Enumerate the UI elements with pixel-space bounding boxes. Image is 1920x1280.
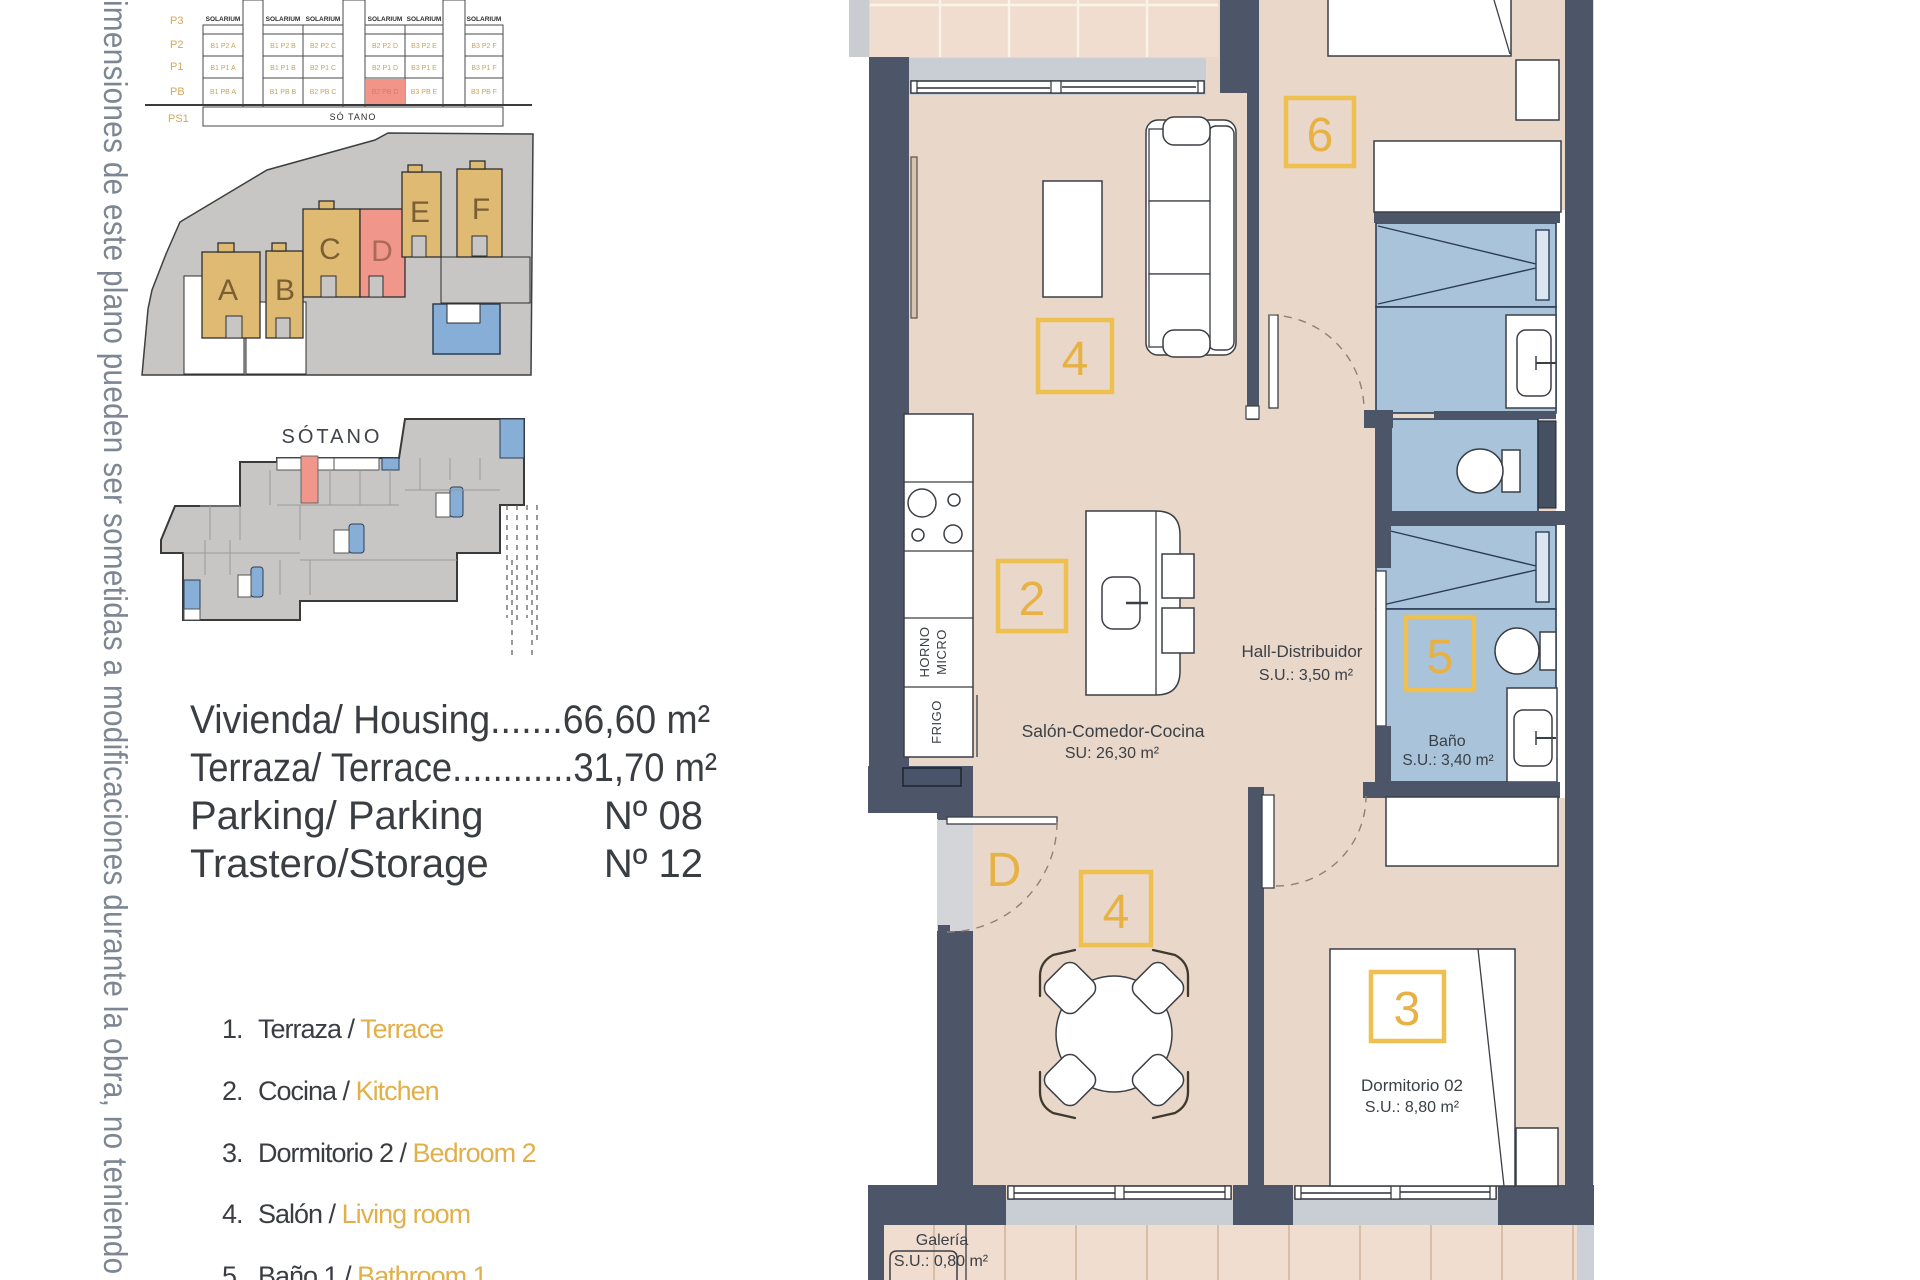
svg-text:SÓTANO: SÓTANO — [282, 425, 383, 448]
svg-text:B3 P2 E: B3 P2 E — [411, 43, 437, 50]
svg-text:Nº 12: Nº 12 — [604, 842, 703, 886]
svg-text:B1 PB A: B1 PB A — [210, 89, 236, 96]
svg-text:S.U.: 3,50 m²: S.U.: 3,50 m² — [1259, 667, 1354, 684]
svg-text:6: 6 — [1307, 109, 1334, 162]
svg-text:D: D — [371, 235, 393, 268]
svg-text:Terraza / Terrace: Terraza / Terrace — [258, 1014, 443, 1044]
svg-text:1.: 1. — [222, 1014, 243, 1044]
svg-text:Trastero/Storage: Trastero/Storage — [190, 842, 489, 886]
svg-text:Parking/ Parking: Parking/ Parking — [190, 794, 483, 838]
svg-text:C: C — [319, 233, 341, 266]
svg-text:Cocina / Kitchen: Cocina / Kitchen — [258, 1076, 439, 1106]
svg-text:SOLARIUM: SOLARIUM — [306, 16, 341, 23]
svg-text:B1 PB B: B1 PB B — [270, 89, 297, 96]
svg-text:B1 P1 B: B1 P1 B — [270, 65, 296, 72]
svg-text:B2 P2 D: B2 P2 D — [372, 43, 398, 50]
svg-text:P3: P3 — [170, 15, 183, 27]
svg-text:P1: P1 — [170, 61, 183, 73]
svg-text:Dormitorio 02: Dormitorio 02 — [1361, 1076, 1463, 1095]
svg-text:S.U.: 8,80 m²: S.U.: 8,80 m² — [1365, 1099, 1460, 1116]
svg-text:B3 PB F: B3 PB F — [471, 89, 497, 96]
svg-text:MICRO: MICRO — [934, 629, 949, 675]
svg-text:imensiones de este plano puede: imensiones de este plano pueden ser some… — [97, 0, 134, 1280]
svg-text:2.: 2. — [222, 1076, 243, 1106]
svg-text:B2 P1 C: B2 P1 C — [310, 65, 336, 72]
svg-text:SOLARIUM: SOLARIUM — [266, 16, 301, 23]
svg-text:4.: 4. — [222, 1199, 243, 1229]
svg-text:B2 PB C: B2 PB C — [310, 89, 337, 96]
svg-text:FRIGO: FRIGO — [929, 700, 944, 744]
svg-text:SOLARIUM: SOLARIUM — [407, 16, 442, 23]
svg-text:B3 P1 E: B3 P1 E — [411, 65, 437, 72]
svg-text:Nº 08: Nº 08 — [604, 794, 703, 838]
svg-text:B1 P1 A: B1 P1 A — [210, 65, 236, 72]
svg-text:2: 2 — [1019, 573, 1046, 626]
svg-text:Baño 1 / Bathroom 1: Baño 1 / Bathroom 1 — [258, 1261, 487, 1280]
svg-text:3.: 3. — [222, 1138, 243, 1168]
svg-text:B: B — [275, 274, 295, 307]
svg-text:4: 4 — [1062, 333, 1089, 386]
svg-text:SOLARIUM: SOLARIUM — [368, 16, 403, 23]
svg-text:P2: P2 — [170, 39, 183, 51]
svg-text:Hall-Distribuidor: Hall-Distribuidor — [1242, 642, 1363, 661]
svg-text:Baño: Baño — [1428, 733, 1465, 750]
svg-text:SOLARIUM: SOLARIUM — [206, 16, 241, 23]
svg-text:B1 P2 B: B1 P2 B — [270, 43, 296, 50]
svg-text:SU: 26,30 m²: SU: 26,30 m² — [1065, 745, 1160, 762]
svg-text:B2 P2 C: B2 P2 C — [310, 43, 336, 50]
svg-text:3: 3 — [1394, 983, 1421, 1036]
svg-text:PS1: PS1 — [168, 113, 189, 125]
svg-text:A: A — [218, 274, 238, 307]
svg-text:E: E — [410, 196, 430, 229]
svg-text:B3 P1 F: B3 P1 F — [471, 65, 496, 72]
svg-text:HORNO: HORNO — [917, 627, 932, 678]
svg-text:SOLARIUM: SOLARIUM — [467, 16, 502, 23]
svg-text:5.: 5. — [222, 1261, 243, 1280]
svg-text:Salón / Living room: Salón / Living room — [258, 1199, 470, 1229]
svg-text:Galería: Galería — [916, 1232, 969, 1249]
svg-text:4: 4 — [1103, 886, 1130, 939]
svg-text:Vivienda/ Housing.......66,60: Vivienda/ Housing.......66,60 m² — [190, 698, 710, 742]
svg-text:Terraza/ Terrace............31: Terraza/ Terrace............31,70 m² — [190, 746, 717, 790]
svg-text:D: D — [987, 844, 1022, 897]
svg-text:Salón-Comedor-Cocina: Salón-Comedor-Cocina — [1022, 721, 1205, 741]
svg-text:B2 P1 D: B2 P1 D — [372, 65, 398, 72]
svg-text:B1 P2 A: B1 P2 A — [210, 43, 236, 50]
svg-text:B3 PB E: B3 PB E — [411, 89, 438, 96]
svg-text:F: F — [472, 193, 490, 226]
svg-text:SÓ TANO: SÓ TANO — [330, 112, 377, 122]
svg-text:S.U.: 0,80 m²: S.U.: 0,80 m² — [894, 1253, 989, 1270]
svg-text:5: 5 — [1427, 631, 1454, 684]
svg-text:S.U.: 3,40 m²: S.U.: 3,40 m² — [1402, 752, 1493, 769]
svg-text:B3 P2 F: B3 P2 F — [471, 43, 496, 50]
svg-text:Dormitorio 2 / Bedroom 2: Dormitorio 2 / Bedroom 2 — [258, 1138, 536, 1168]
svg-text:B2 PB D: B2 PB D — [372, 89, 399, 96]
svg-text:PB: PB — [170, 86, 185, 98]
